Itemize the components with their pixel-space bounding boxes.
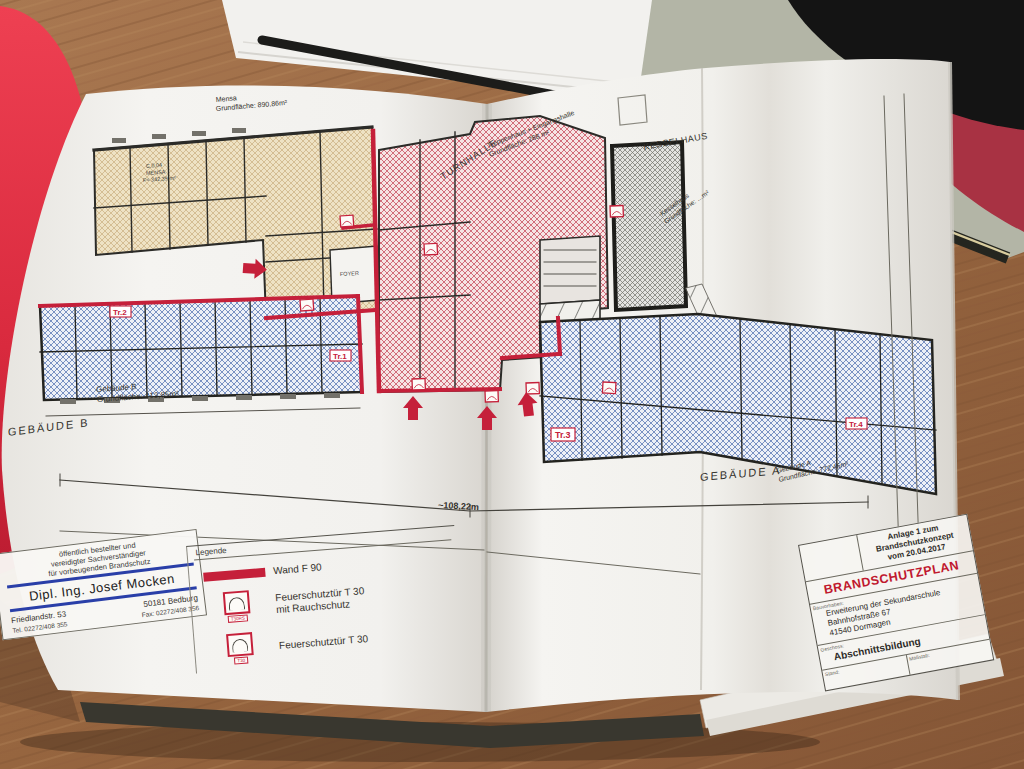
- fire-door-icon: [424, 243, 438, 255]
- tr3-text: Tr.3: [555, 430, 571, 440]
- wall-f90-symbol: [203, 567, 266, 581]
- legend-item-door-t30rs: T30RS Feuerschutztür T 30 mit Rauchschut…: [197, 574, 457, 625]
- tr2-text: Tr.2: [113, 308, 127, 317]
- door-tag-t30: T30: [234, 656, 248, 664]
- stair-label-tr3: Tr.3: [551, 428, 575, 441]
- stair-label-tr4: Tr.4: [846, 418, 867, 429]
- fire-door-icon: [526, 383, 539, 394]
- scale-label: Maßstab:: [909, 652, 931, 662]
- tr4-text: Tr.4: [849, 420, 863, 429]
- legend-t30-label: Feuerschutztür T 30: [279, 633, 369, 652]
- door-tag-t30rs: T30RS: [228, 614, 249, 623]
- stand-label: Stand:: [824, 669, 839, 678]
- fire-door-icon: [485, 391, 498, 402]
- dimension-label: ~108,22m: [438, 500, 479, 512]
- fire-door-t30rs-icon: [223, 590, 251, 615]
- room-c004-number: C.0.04: [146, 162, 163, 169]
- fire-door-icon: [602, 382, 616, 394]
- fire-door-icon: [412, 379, 425, 390]
- legend: Legende Wand F 90 T30RS Feuerschutztür T…: [186, 525, 464, 674]
- fire-door-icon: [610, 206, 623, 217]
- title-block: Anlage 1 zum Brandschutzkonzept vom 20.0…: [798, 514, 994, 692]
- tr1-text: Tr.1: [333, 352, 347, 361]
- stair-label-tr2: Tr.2: [110, 306, 131, 317]
- stair-label-tr1: Tr.1: [330, 350, 351, 361]
- fire-door-icon: [300, 299, 314, 311]
- fire-door-t30-icon: [226, 632, 254, 657]
- room-foyer: FOYER: [340, 270, 359, 277]
- legend-wall-label: Wand F 90: [273, 561, 322, 577]
- photo-of-fire-protection-plan: Tr.1 Tr.2 Tr.3 Tr.4: [0, 0, 1024, 769]
- fire-door-icon: [340, 215, 354, 227]
